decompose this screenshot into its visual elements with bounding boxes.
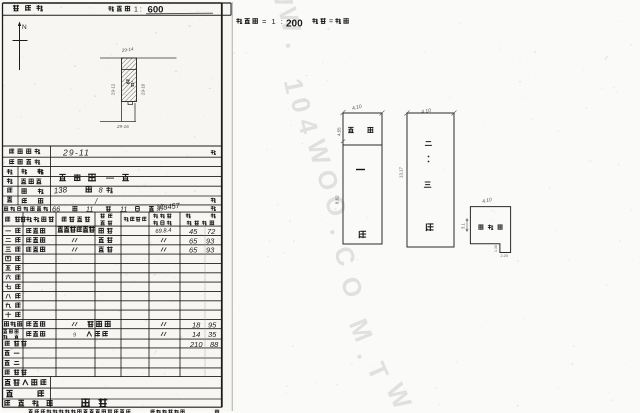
svg-text:-11: -11 bbox=[130, 81, 135, 88]
svg-text:O: O bbox=[334, 272, 369, 301]
svg-text:29: 29 bbox=[125, 79, 130, 85]
svg-text:93: 93 bbox=[206, 246, 215, 255]
svg-text:29-11: 29-11 bbox=[62, 148, 90, 158]
svg-text:O: O bbox=[311, 166, 346, 194]
svg-text:72: 72 bbox=[207, 227, 216, 236]
svg-text:=: = bbox=[329, 19, 333, 26]
svg-text:9: 9 bbox=[73, 332, 76, 338]
svg-text:13.17: 13.17 bbox=[399, 166, 404, 178]
svg-text:4.55: 4.55 bbox=[337, 127, 342, 136]
svg-text:1 :: 1 : bbox=[134, 7, 142, 14]
svg-text:29-16: 29-16 bbox=[116, 124, 129, 129]
svg-text:45: 45 bbox=[189, 227, 198, 236]
svg-text:4.10: 4.10 bbox=[482, 197, 493, 205]
svg-text:N: N bbox=[22, 24, 27, 31]
svg-text:95: 95 bbox=[208, 320, 217, 329]
svg-text:29-10: 29-10 bbox=[141, 83, 146, 95]
svg-text:29-12: 29-12 bbox=[111, 83, 116, 95]
svg-text:3.1: 3.1 bbox=[461, 223, 466, 229]
svg-text:138: 138 bbox=[53, 185, 68, 195]
svg-text:65: 65 bbox=[189, 246, 198, 255]
svg-text:C: C bbox=[328, 242, 363, 270]
svg-text:14: 14 bbox=[192, 330, 200, 339]
svg-text:M: M bbox=[343, 314, 379, 345]
svg-text:93: 93 bbox=[206, 236, 215, 245]
svg-text:.: . bbox=[324, 222, 355, 238]
svg-text:4.10: 4.10 bbox=[421, 108, 432, 116]
svg-text:2.20: 2.20 bbox=[501, 254, 508, 258]
svg-text:= 1 :: = 1 : bbox=[262, 17, 284, 26]
svg-text:18: 18 bbox=[192, 320, 201, 329]
svg-text:8.62: 8.62 bbox=[335, 195, 340, 204]
svg-text:210: 210 bbox=[189, 340, 203, 349]
svg-text:.: . bbox=[351, 345, 381, 363]
svg-text:200: 200 bbox=[286, 19, 303, 30]
svg-text:65: 65 bbox=[189, 236, 198, 245]
svg-text:0: 0 bbox=[285, 95, 317, 116]
svg-text:—: — bbox=[106, 174, 114, 183]
svg-text:11: 11 bbox=[86, 206, 93, 213]
svg-text:T: T bbox=[361, 358, 395, 385]
svg-text:1: 1 bbox=[278, 76, 310, 96]
svg-text:66: 66 bbox=[52, 205, 61, 214]
svg-text:W: W bbox=[380, 378, 418, 413]
svg-text:4.10: 4.10 bbox=[352, 104, 363, 112]
svg-text:4: 4 bbox=[292, 115, 325, 137]
svg-text:88: 88 bbox=[210, 340, 219, 349]
svg-text:W: W bbox=[301, 136, 337, 168]
svg-text:35: 35 bbox=[208, 330, 217, 339]
svg-text:1.30: 1.30 bbox=[494, 245, 498, 252]
svg-text:.: . bbox=[280, 37, 311, 51]
